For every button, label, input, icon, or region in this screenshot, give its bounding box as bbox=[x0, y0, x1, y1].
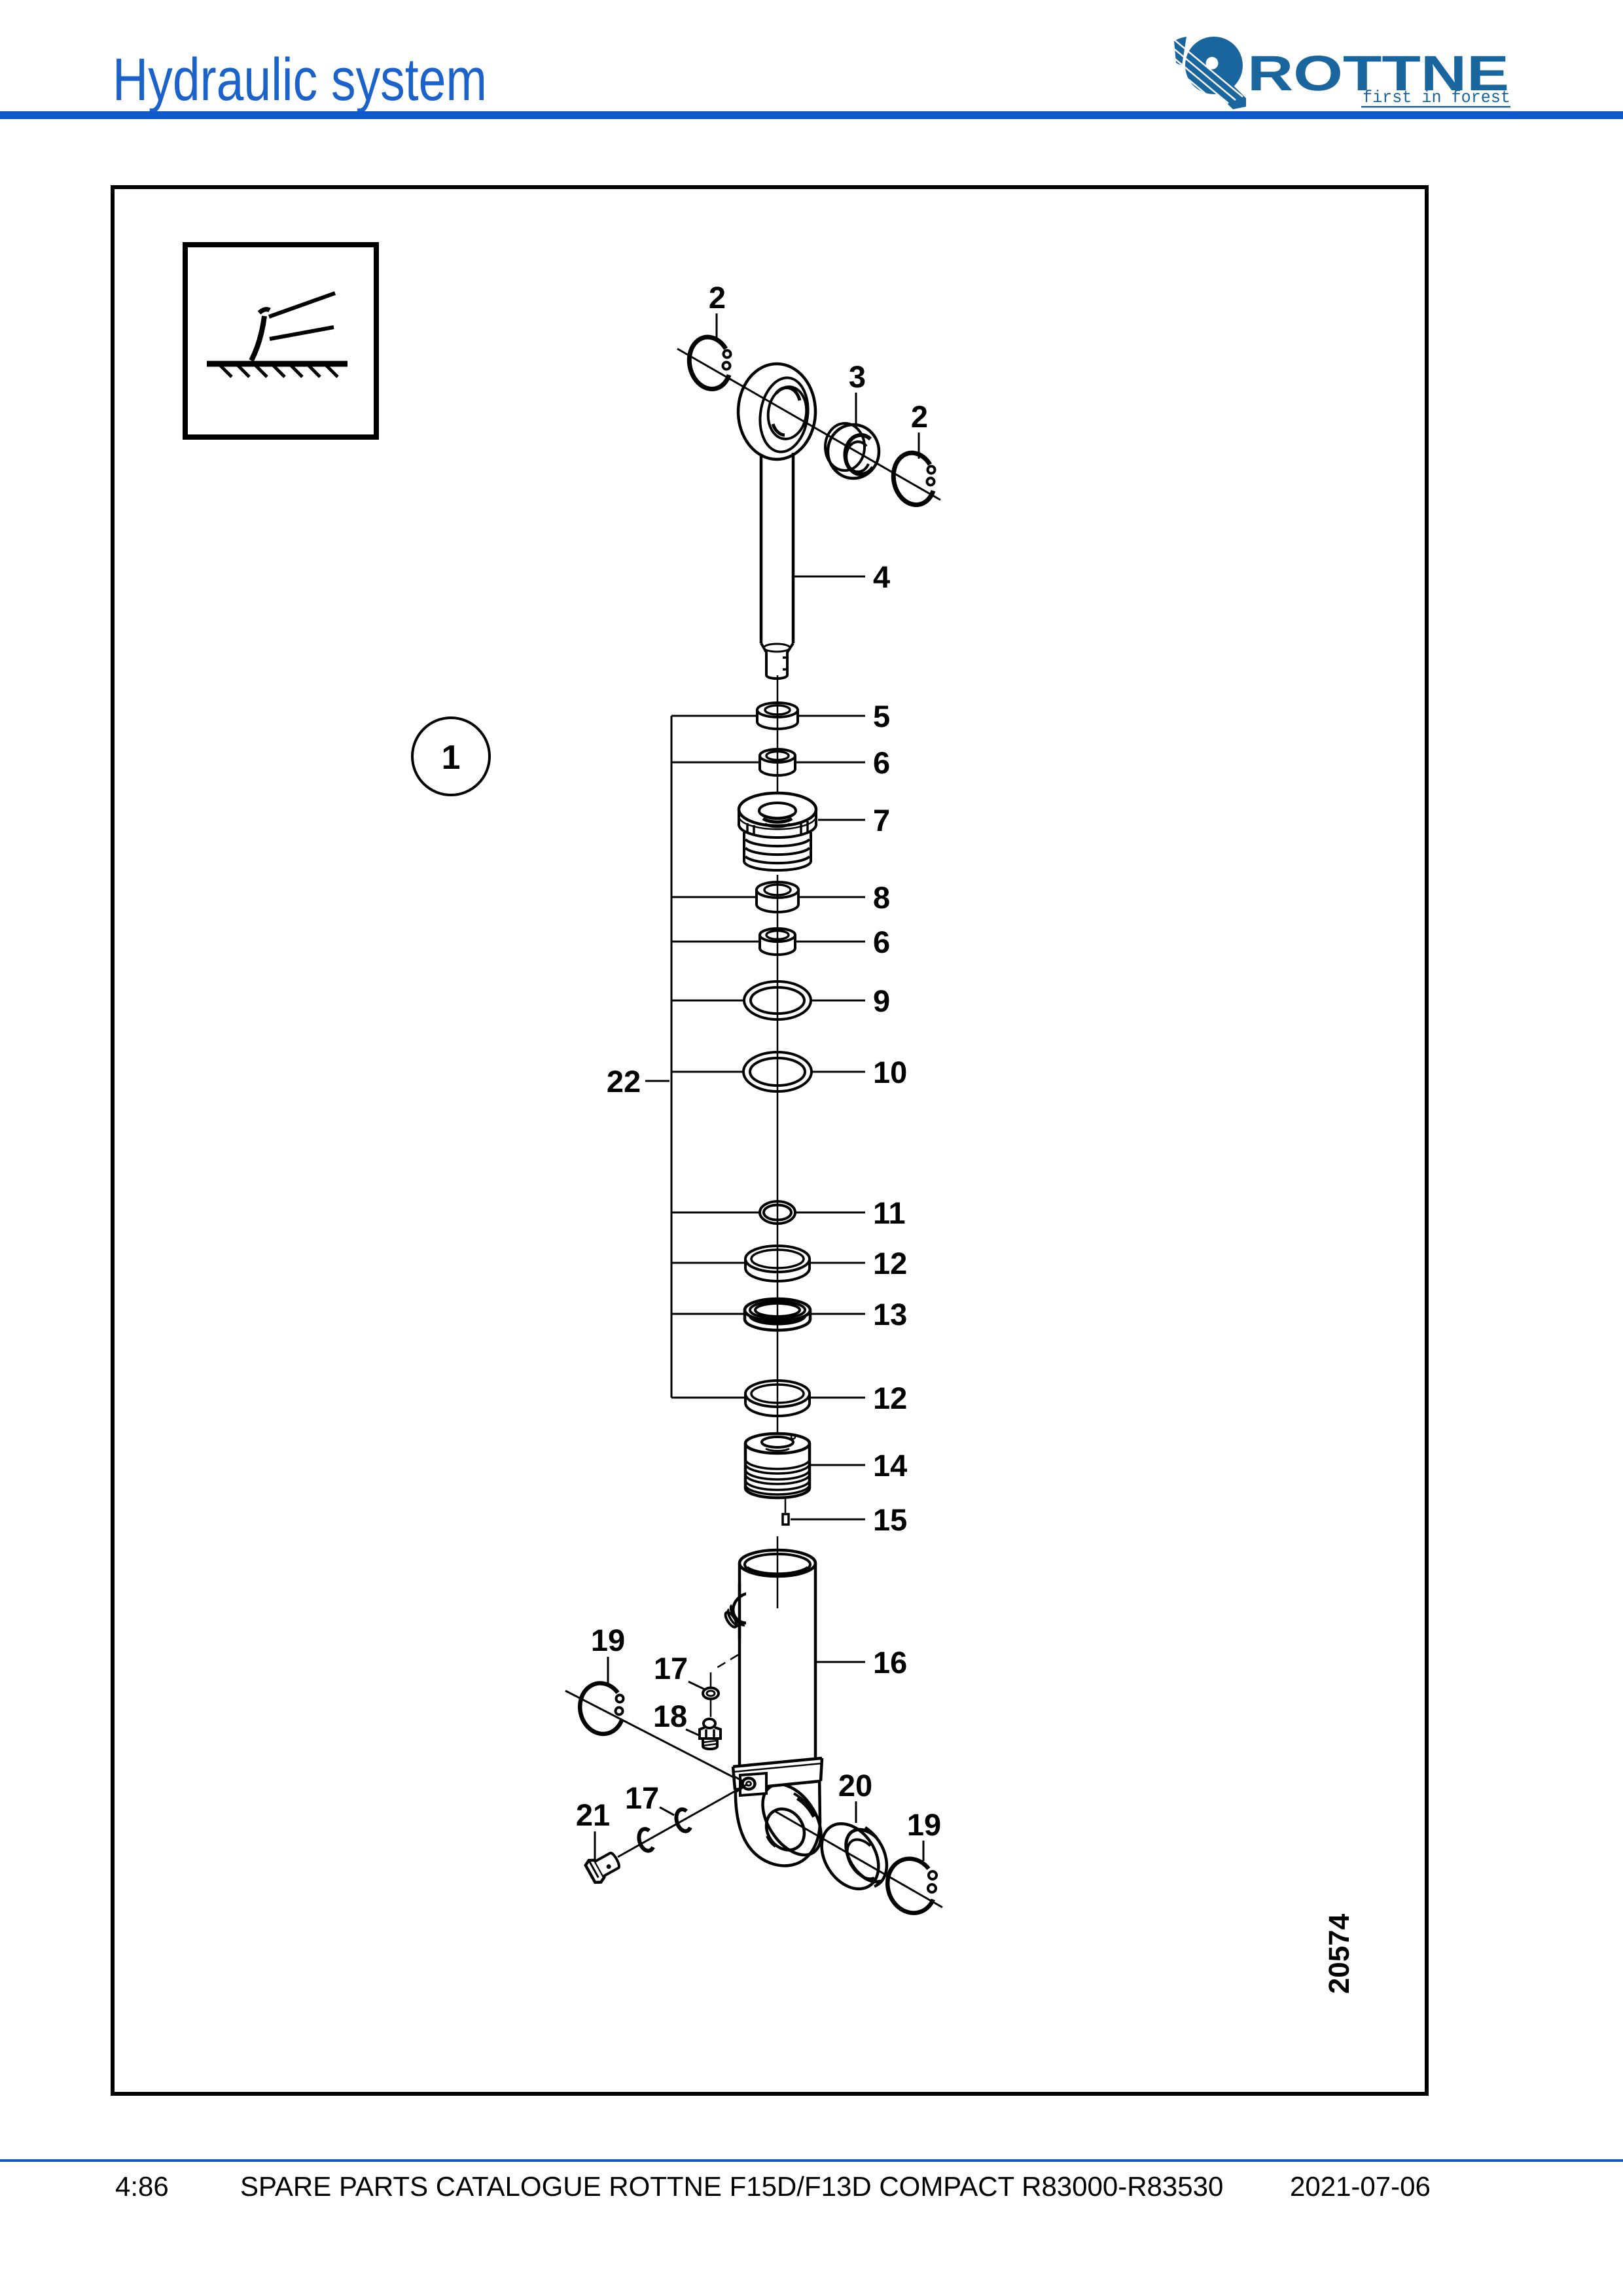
svg-text:21: 21 bbox=[576, 1797, 610, 1832]
svg-text:5: 5 bbox=[873, 699, 890, 733]
svg-text:19: 19 bbox=[907, 1807, 941, 1842]
svg-text:6: 6 bbox=[873, 745, 890, 780]
svg-text:SPARE PARTS CATALOGUE ROTTNE F: SPARE PARTS CATALOGUE ROTTNE F15D/F13D C… bbox=[240, 2171, 1223, 2202]
svg-text:7: 7 bbox=[873, 803, 890, 838]
svg-text:20574: 20574 bbox=[1323, 1913, 1355, 1994]
svg-text:22: 22 bbox=[607, 1064, 641, 1099]
svg-text:15: 15 bbox=[873, 1502, 907, 1537]
svg-text:20: 20 bbox=[838, 1768, 872, 1803]
svg-text:4: 4 bbox=[873, 559, 890, 594]
svg-text:19: 19 bbox=[591, 1623, 625, 1657]
svg-text:12: 12 bbox=[873, 1246, 907, 1280]
svg-text:16: 16 bbox=[873, 1645, 907, 1680]
svg-text:8: 8 bbox=[873, 880, 890, 915]
svg-text:13: 13 bbox=[873, 1297, 907, 1332]
svg-text:12: 12 bbox=[873, 1381, 907, 1415]
svg-text:3: 3 bbox=[849, 359, 866, 394]
svg-text:11: 11 bbox=[873, 1195, 906, 1230]
svg-text:17: 17 bbox=[625, 1780, 659, 1815]
svg-text:17: 17 bbox=[654, 1651, 688, 1686]
svg-text:4:86: 4:86 bbox=[115, 2171, 169, 2202]
svg-text:6: 6 bbox=[873, 925, 890, 959]
svg-text:14: 14 bbox=[873, 1448, 907, 1483]
svg-text:first in forest: first in forest bbox=[1363, 88, 1510, 107]
svg-text:2: 2 bbox=[709, 280, 726, 315]
svg-text:2021-07-06: 2021-07-06 bbox=[1290, 2171, 1431, 2202]
svg-text:Hydraulic system: Hydraulic system bbox=[113, 46, 487, 113]
svg-text:18: 18 bbox=[653, 1699, 687, 1733]
svg-text:9: 9 bbox=[873, 983, 890, 1018]
svg-text:1: 1 bbox=[442, 739, 461, 777]
svg-text:2: 2 bbox=[911, 399, 928, 434]
svg-text:10: 10 bbox=[873, 1055, 907, 1089]
